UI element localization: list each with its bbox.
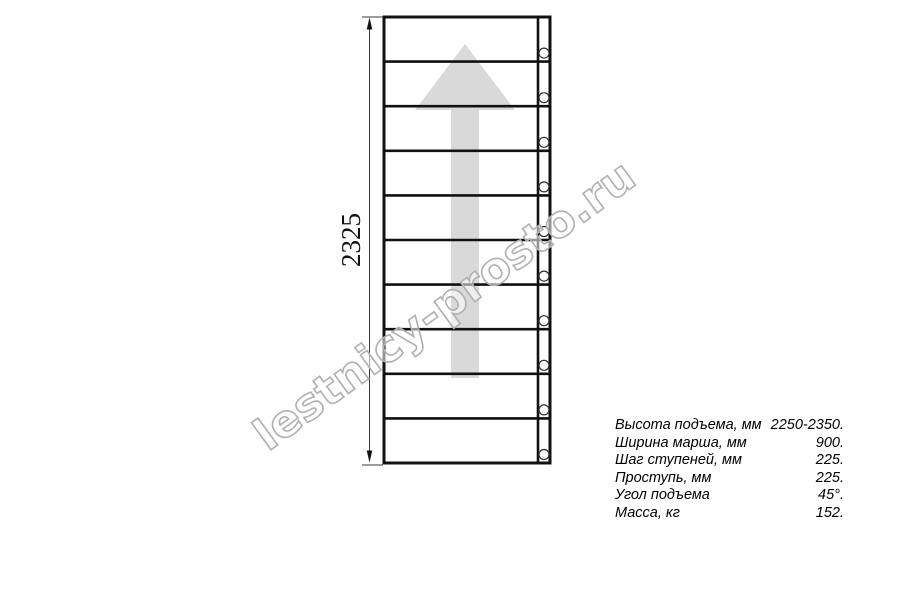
height-dimension-label: 2325: [336, 213, 366, 267]
spec-label: Угол подъема: [615, 487, 710, 505]
watermark-text: lestnicy-prosto.ru: [244, 150, 645, 460]
spec-label: Проступь, мм: [615, 470, 711, 488]
fastener-circle: [539, 48, 549, 58]
spec-value: 225.: [816, 470, 844, 488]
spec-label: Масса, кг: [615, 505, 680, 523]
fastener-circle: [539, 316, 549, 326]
spec-label: Ширина марша, мм: [615, 435, 747, 453]
fastener-circle: [539, 360, 549, 370]
spec-row-step-pitch: Шаг ступеней, мм 225.: [615, 452, 844, 470]
spec-value: 2250-2350.: [771, 417, 844, 435]
spec-row-height: Высота подъема, мм 2250-2350.: [615, 417, 844, 435]
fastener-circle: [539, 271, 549, 281]
fastener-circle: [539, 405, 549, 415]
spec-label: Высота подъема, мм: [615, 417, 762, 435]
spec-row-tread: Проступь, мм 225.: [615, 470, 844, 488]
specs-table: Высота подъема, мм 2250-2350. Ширина мар…: [615, 417, 844, 522]
dimension-arrow-top-icon: [367, 18, 373, 30]
spec-value: 45°.: [818, 487, 844, 505]
spec-value: 152.: [816, 505, 844, 523]
fastener-circle: [539, 182, 549, 192]
fastener-circle: [539, 450, 549, 460]
spec-label: Шаг ступеней, мм: [615, 452, 742, 470]
dimension-arrow-bottom-icon: [367, 451, 373, 463]
fastener-circle: [539, 93, 549, 103]
spec-value: 900.: [816, 435, 844, 453]
spec-row-width: Ширина марша, мм 900.: [615, 435, 844, 453]
fastener-circle: [539, 137, 549, 147]
spec-row-angle: Угол подъема 45°.: [615, 487, 844, 505]
spec-row-mass: Масса, кг 152.: [615, 505, 844, 523]
spec-value: 225.: [816, 452, 844, 470]
